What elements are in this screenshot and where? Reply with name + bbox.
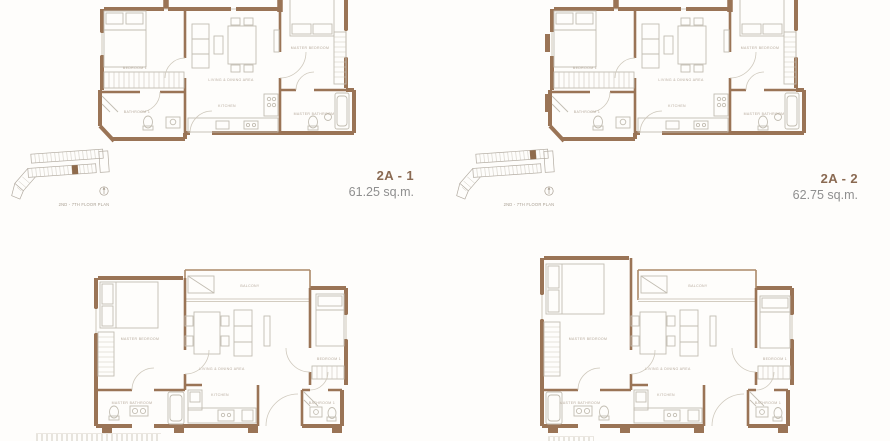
bed-icon bbox=[104, 11, 146, 67]
unit-name: 2A - 2 bbox=[744, 172, 858, 187]
master-wardrobe-icon bbox=[98, 332, 114, 376]
bathtub-icon bbox=[546, 392, 562, 424]
floor-plan-2a2: BEDROOM 1 LIVING & DINING AREA MASTER BE… bbox=[538, 0, 808, 145]
room-label-kitchen: KITCHEN bbox=[657, 393, 675, 397]
building-outline bbox=[454, 149, 556, 200]
room-label-bathroom1: BATHROOM 1 bbox=[755, 401, 781, 405]
tv-console-icon bbox=[274, 30, 279, 52]
tv-console-icon bbox=[264, 316, 270, 346]
toilet-icon bbox=[773, 408, 782, 422]
master-bed-icon bbox=[100, 282, 158, 328]
sink-icon bbox=[130, 406, 148, 416]
room-label-living: LIVING & DINING AREA bbox=[208, 78, 254, 82]
room-label-master-bathroom: MASTER BATHROOM bbox=[294, 112, 335, 116]
floor-plan-2a1: BEDROOM 1 LIVING & DINING AREA MASTER BE… bbox=[88, 0, 358, 145]
keyplan-fragment-right bbox=[548, 436, 594, 441]
bathtub-icon bbox=[785, 93, 799, 129]
unit-name: 2A - 1 bbox=[300, 169, 414, 184]
tv-console-icon bbox=[724, 30, 729, 52]
dining-table-icon bbox=[631, 312, 675, 354]
room-label-bathroom1: BATHROOM 1 bbox=[574, 110, 600, 114]
floor-plan-bottom-left: MASTER BEDROOM BALCONY LIVING & DINING A… bbox=[80, 250, 365, 440]
sink-icon bbox=[616, 117, 630, 128]
walls bbox=[100, 0, 434, 141]
master-bed-icon bbox=[740, 0, 784, 36]
toilet-icon bbox=[109, 406, 119, 420]
unit-label-2a1: 2A - 1 61.25 sq.m. bbox=[300, 169, 414, 199]
master-bed-icon bbox=[546, 264, 604, 314]
dining-table-icon bbox=[185, 312, 229, 354]
sofa-icon bbox=[642, 24, 673, 68]
room-label-master-bedroom: MASTER BEDROOM bbox=[569, 337, 608, 341]
room-label-kitchen: KITCHEN bbox=[218, 104, 236, 108]
unit-area: 61.25 sq.m. bbox=[300, 185, 414, 199]
sink-icon bbox=[166, 117, 180, 128]
bathtub-icon bbox=[335, 93, 349, 129]
floor-plan-drawing-3: MASTER BEDROOM BALCONY LIVING & DINING A… bbox=[80, 250, 365, 440]
room-label-kitchen: KITCHEN bbox=[668, 104, 686, 108]
room-label-living: LIVING & DINING AREA bbox=[645, 367, 691, 371]
room-labels: MASTER BEDROOM BALCONY LIVING & DINING A… bbox=[112, 284, 341, 405]
compass-icon bbox=[100, 187, 108, 195]
sink-icon bbox=[574, 406, 592, 416]
room-label-master-bedroom: MASTER BEDROOM bbox=[291, 46, 330, 50]
floor-plan-drawing-2a2: BEDROOM 1 LIVING & DINING AREA MASTER BE… bbox=[538, 0, 808, 145]
unit-highlight bbox=[72, 165, 79, 174]
room-label-master-bathroom: MASTER BATHROOM bbox=[744, 112, 785, 116]
wardrobe-icon bbox=[554, 72, 634, 88]
key-plan-diagram: 2ND - 7TH FLOOR PLAN bbox=[8, 142, 123, 210]
bathtub-icon bbox=[168, 392, 184, 424]
shower-icon bbox=[102, 96, 118, 112]
kitchen-counter-icon bbox=[638, 94, 728, 132]
furniture bbox=[544, 264, 790, 424]
shower-icon bbox=[552, 96, 568, 112]
toilet-icon bbox=[327, 408, 336, 422]
kitchen-counter-icon bbox=[188, 94, 278, 132]
room-label-living: LIVING & DINING AREA bbox=[658, 78, 704, 82]
doors bbox=[132, 348, 328, 426]
room-label-bathroom1: BATHROOM 1 bbox=[309, 401, 335, 405]
keyplan-caption: 2ND - 7TH FLOOR PLAN bbox=[504, 202, 555, 207]
room-label-living: LIVING & DINING AREA bbox=[199, 367, 245, 371]
unit-highlight bbox=[530, 150, 537, 159]
master-bed-icon bbox=[290, 0, 334, 36]
building-outline bbox=[9, 149, 111, 200]
room-label-bathroom1: BATHROOM 1 bbox=[124, 110, 150, 114]
sofa-icon bbox=[192, 24, 223, 68]
sink-icon bbox=[756, 407, 768, 417]
ac-unit-icon bbox=[641, 276, 667, 293]
sink-icon bbox=[310, 407, 322, 417]
room-label-master-bathroom: MASTER BATHROOM bbox=[560, 401, 601, 405]
room-label-master-bedroom: MASTER BEDROOM bbox=[741, 46, 780, 50]
key-plan-2a1: 2ND - 7TH FLOOR PLAN bbox=[8, 142, 123, 210]
walls bbox=[545, 0, 804, 141]
room-label-master-bedroom: MASTER BEDROOM bbox=[121, 337, 160, 341]
floor-plan-drawing-2a1: BEDROOM 1 LIVING & DINING AREA MASTER BE… bbox=[88, 0, 358, 145]
toilet-icon bbox=[758, 116, 768, 130]
sofa-icon bbox=[234, 310, 252, 356]
dining-table-icon bbox=[678, 18, 706, 72]
unit-label-2a2: 2A - 2 62.75 sq.m. bbox=[744, 172, 858, 202]
sofa-icon bbox=[680, 310, 698, 356]
room-label-bedroom1: BEDROOM 1 bbox=[763, 357, 787, 361]
key-plan-2a2: 2ND - 7TH FLOOR PLAN bbox=[453, 142, 568, 210]
toilet-icon bbox=[308, 116, 318, 130]
unit-area: 62.75 sq.m. bbox=[744, 188, 858, 202]
toilet-icon bbox=[599, 406, 609, 420]
dining-table-icon bbox=[228, 18, 256, 72]
toilet-icon bbox=[593, 116, 603, 130]
room-label-balcony: BALCONY bbox=[688, 284, 707, 288]
toilet-icon bbox=[143, 116, 153, 130]
ac-unit-icon bbox=[188, 276, 214, 293]
bed-icon bbox=[554, 11, 596, 67]
room-labels: MASTER BEDROOM BALCONY LIVING & DINING A… bbox=[560, 284, 787, 405]
room-label-bedroom1: BEDROOM 1 bbox=[573, 66, 597, 70]
tv-console-icon bbox=[710, 316, 716, 346]
floor-plan-drawing-4: MASTER BEDROOM BALCONY LIVING & DINING A… bbox=[526, 250, 811, 440]
keyplan-caption: 2ND - 7TH FLOOR PLAN bbox=[59, 202, 110, 207]
master-wardrobe-icon bbox=[544, 322, 560, 376]
compass-icon bbox=[545, 187, 553, 195]
wardrobe-icon bbox=[104, 72, 184, 88]
walls bbox=[95, 270, 348, 433]
room-label-master-bathroom: MASTER BATHROOM bbox=[112, 401, 153, 405]
room-label-bedroom1: BEDROOM 1 bbox=[123, 66, 147, 70]
bed-icon bbox=[760, 296, 790, 348]
room-label-balcony: BALCONY bbox=[240, 284, 259, 288]
room-label-kitchen: KITCHEN bbox=[211, 393, 229, 397]
floor-plan-bottom-right: MASTER BEDROOM BALCONY LIVING & DINING A… bbox=[526, 250, 811, 440]
key-plan-diagram: 2ND - 7TH FLOOR PLAN bbox=[453, 142, 568, 210]
room-label-bedroom1: BEDROOM 1 bbox=[317, 357, 341, 361]
floor-plan-sheet: BEDROOM 1 LIVING & DINING AREA MASTER BE… bbox=[0, 0, 890, 440]
doors bbox=[578, 348, 774, 426]
bed-icon bbox=[316, 294, 344, 346]
